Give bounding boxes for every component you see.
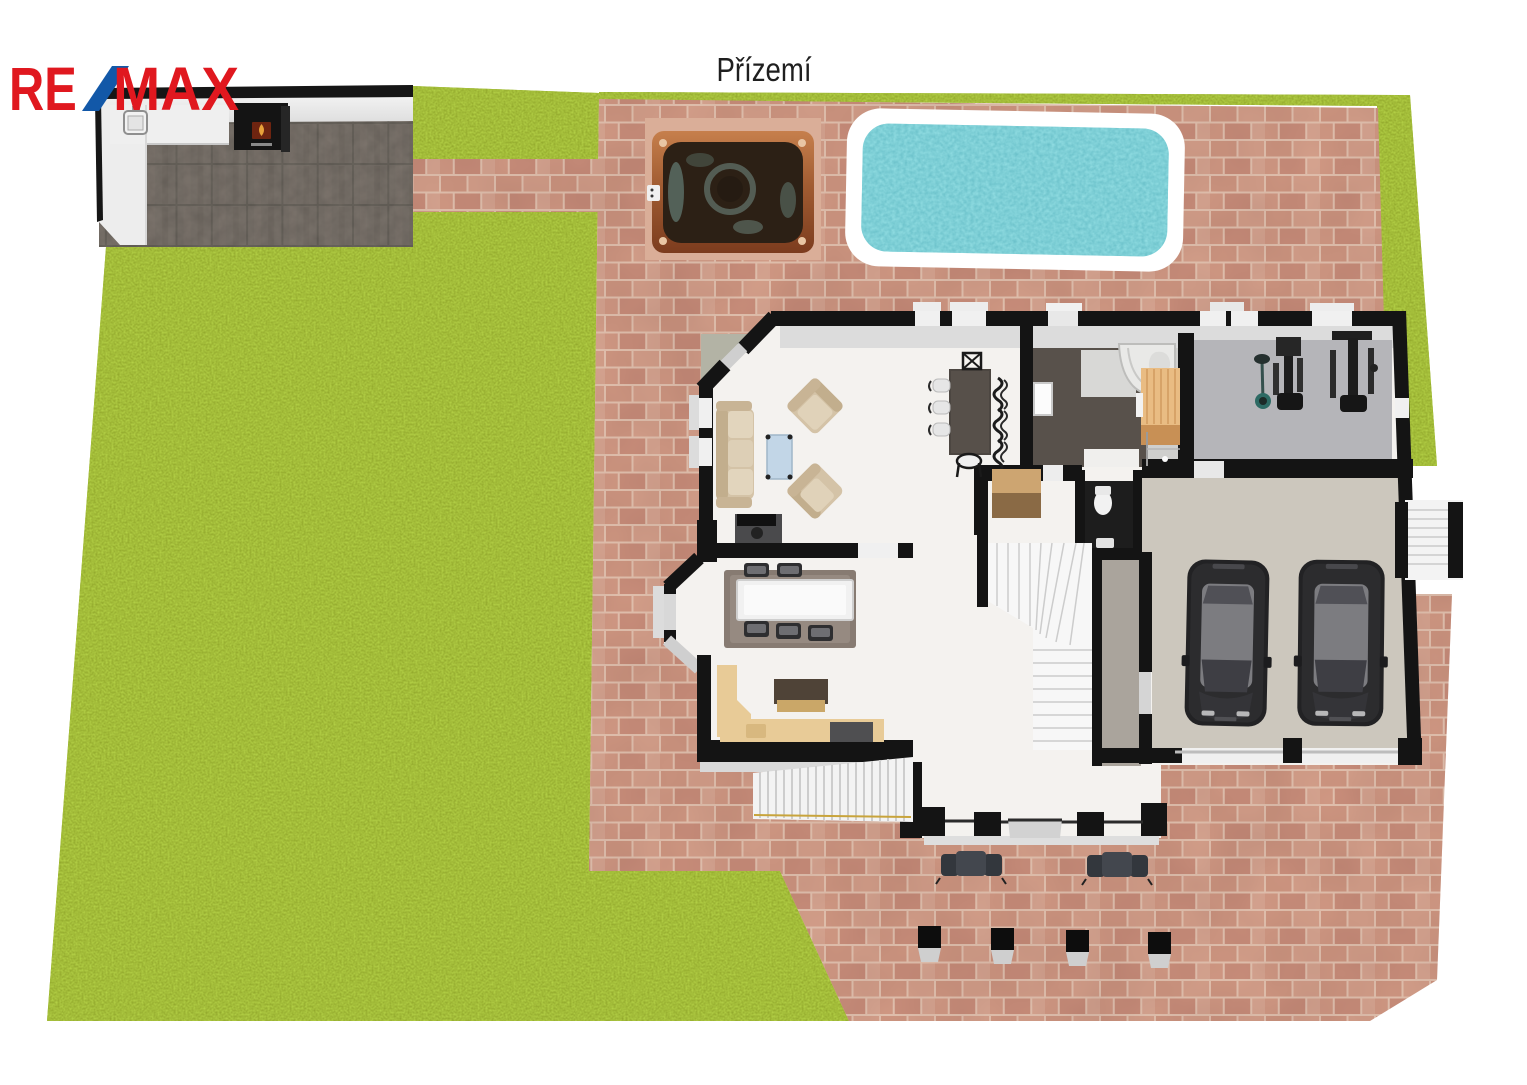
svg-text:Přízemí: Přízemí bbox=[717, 51, 812, 88]
svg-text:RE: RE bbox=[9, 55, 77, 123]
svg-text:MAX: MAX bbox=[113, 56, 239, 123]
